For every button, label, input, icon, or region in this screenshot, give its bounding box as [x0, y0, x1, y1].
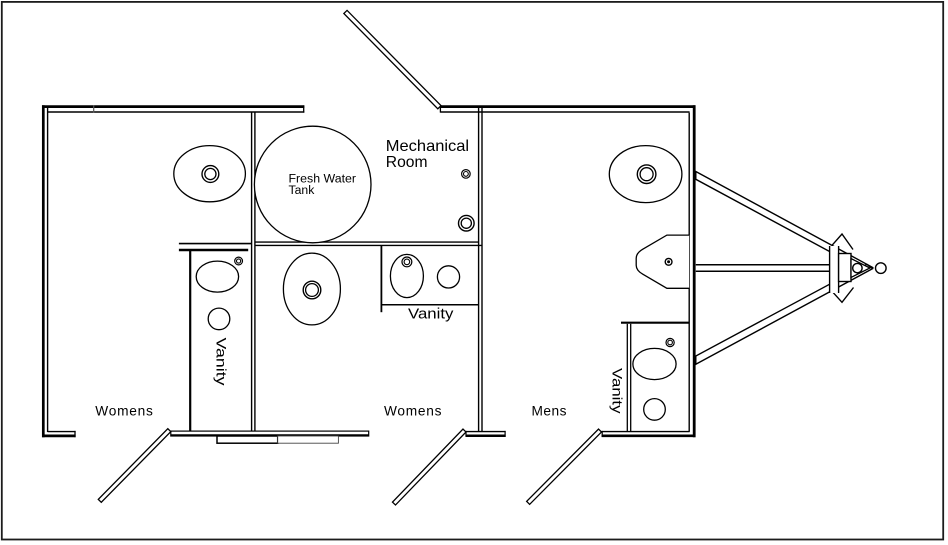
svg-text:Fresh Water: Fresh Water [289, 174, 357, 186]
svg-text:Womens: Womens [384, 403, 442, 418]
svg-text:Vanity: Vanity [610, 368, 626, 414]
svg-text:Womens: Womens [95, 403, 153, 418]
svg-text:Vanity: Vanity [408, 305, 454, 322]
svg-text:Mens: Mens [532, 403, 567, 418]
svg-text:Room: Room [386, 154, 428, 171]
svg-text:Tank: Tank [289, 185, 315, 197]
svg-text:Vanity: Vanity [213, 338, 229, 386]
svg-text:Mechanical: Mechanical [386, 138, 469, 155]
